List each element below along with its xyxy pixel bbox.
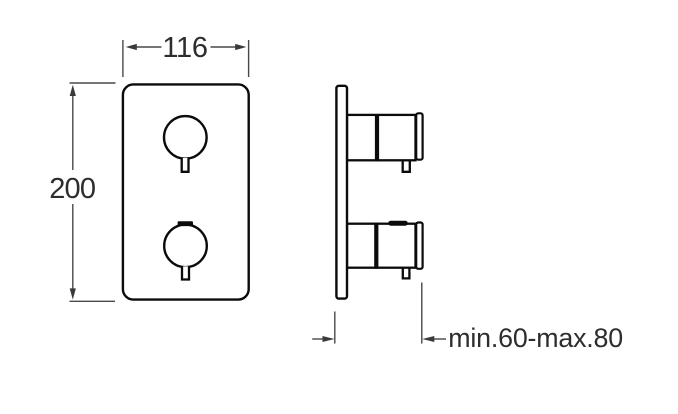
svg-text:116: 116	[162, 32, 207, 64]
svg-text:200: 200	[49, 173, 95, 205]
svg-text:min.60-max.80: min.60-max.80	[448, 323, 623, 353]
